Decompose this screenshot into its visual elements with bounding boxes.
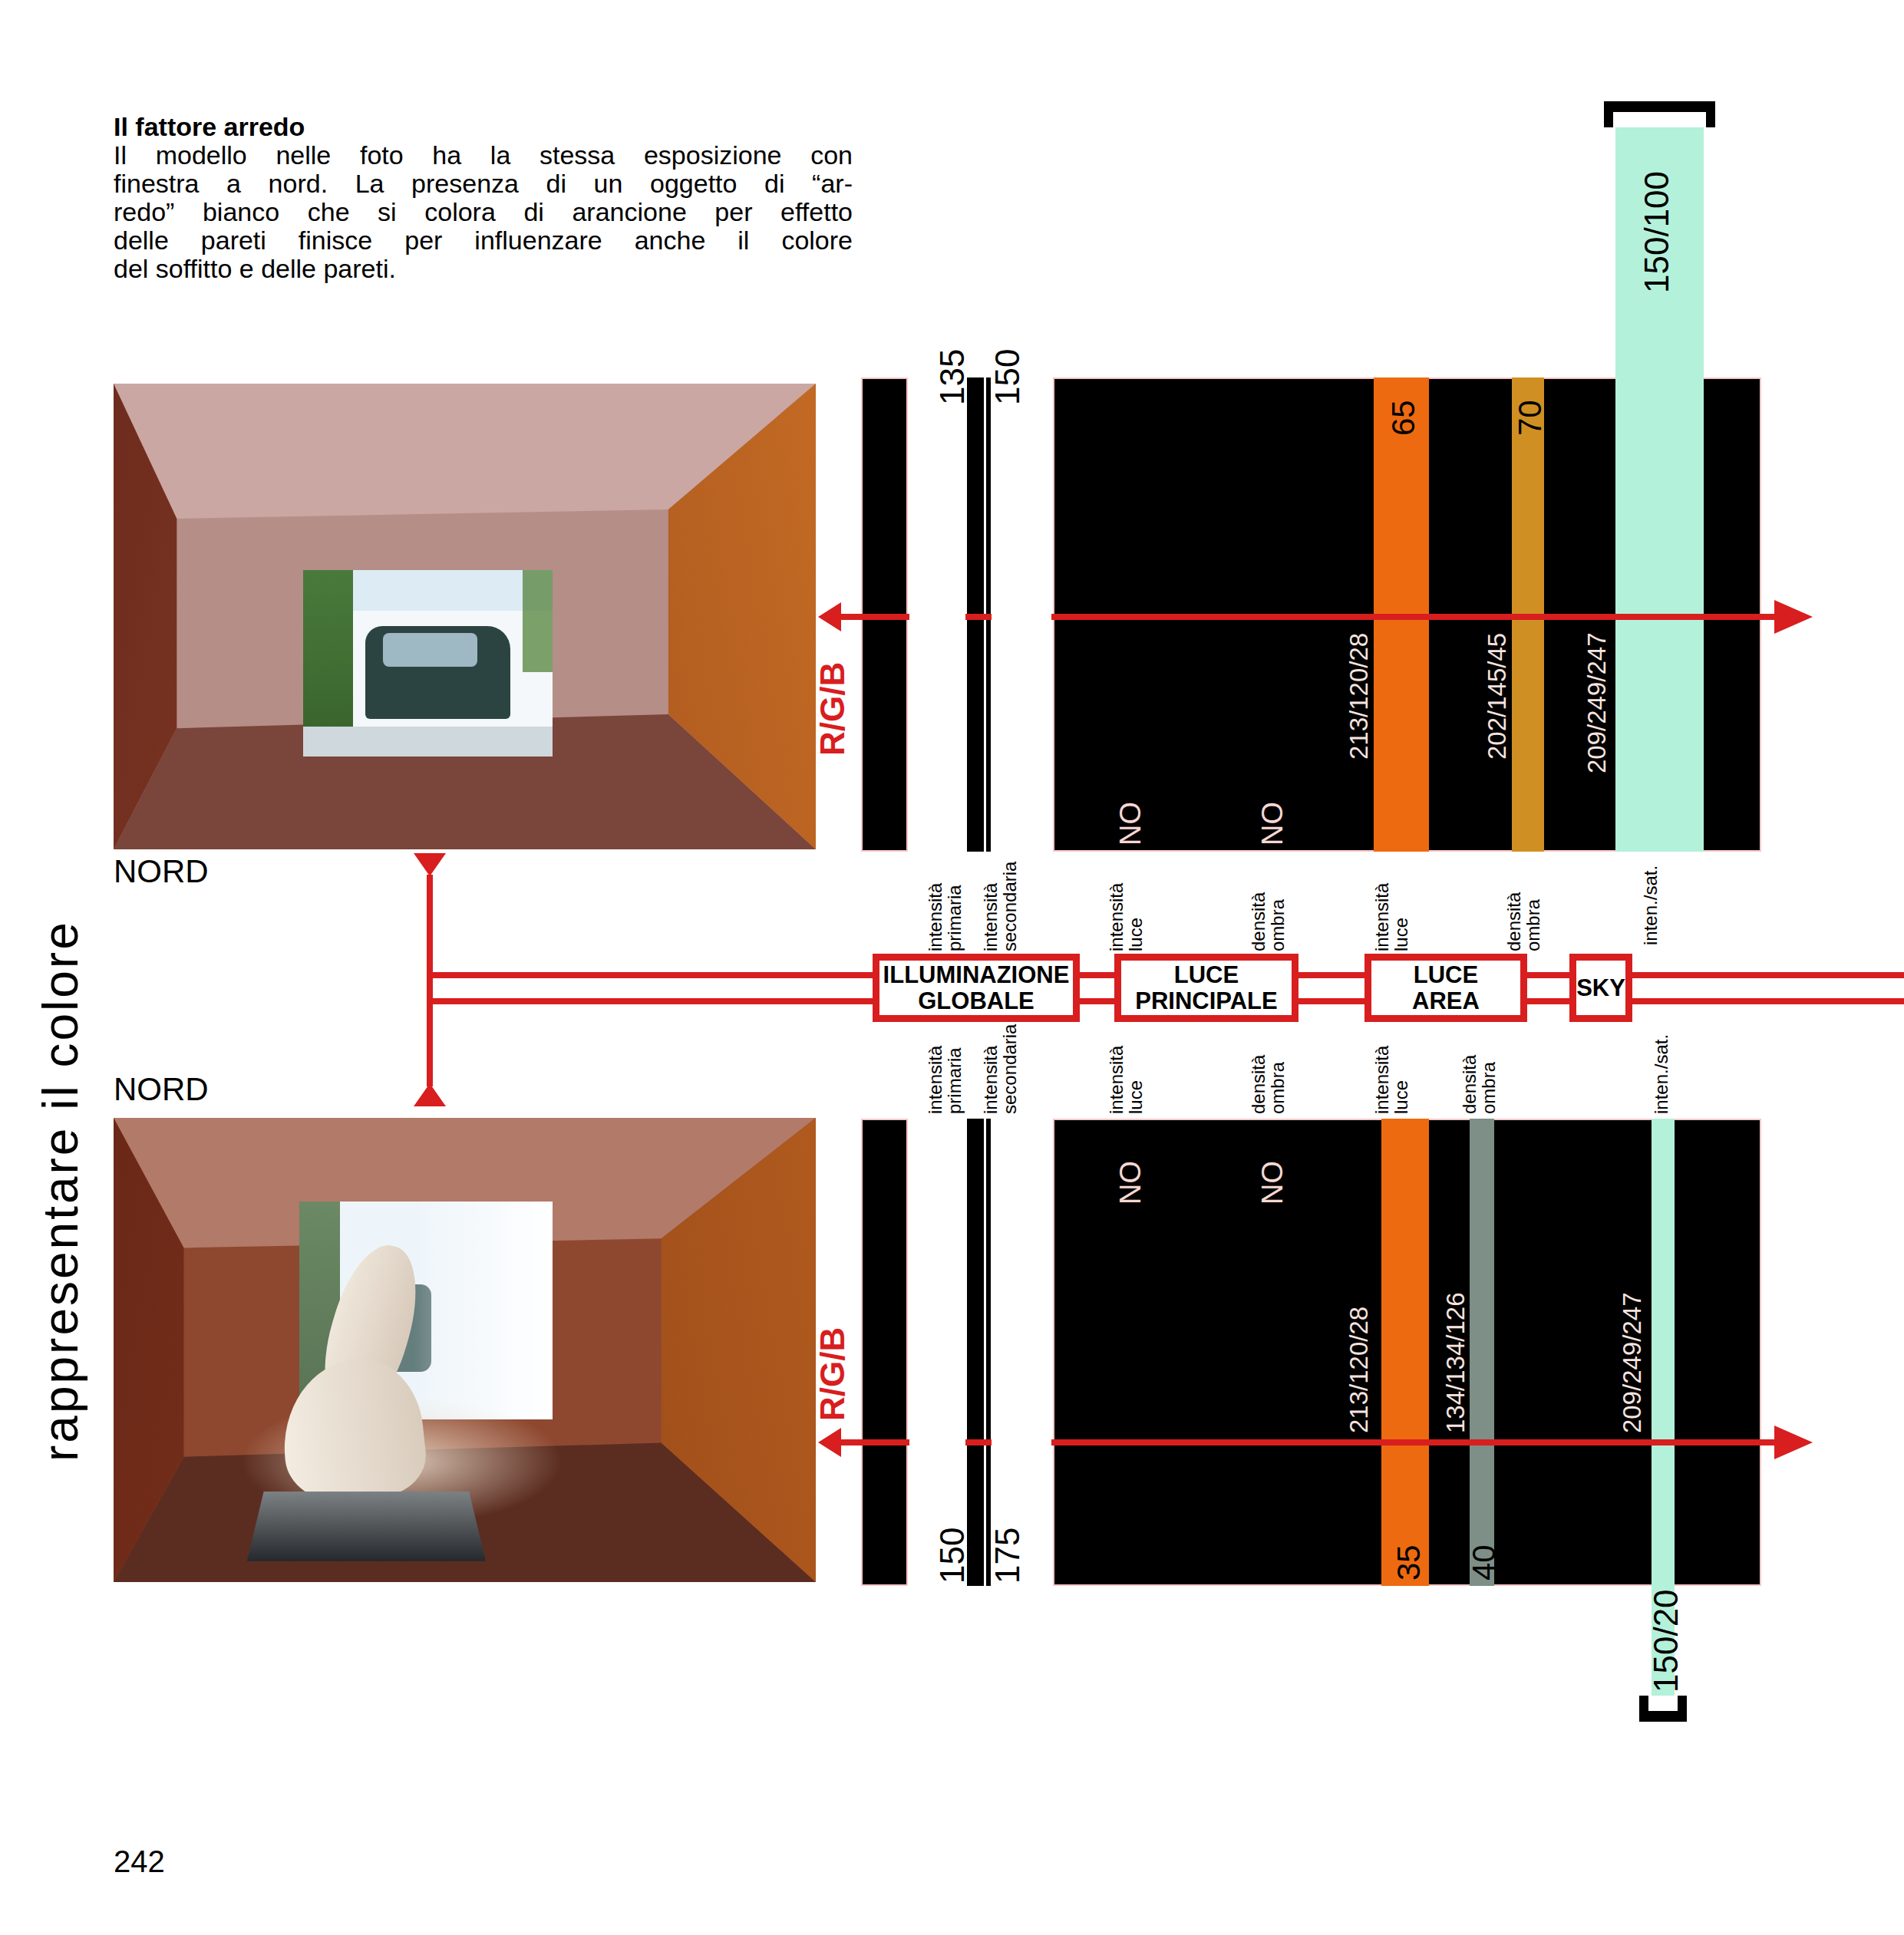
top-no-light-label: NO (1114, 802, 1147, 846)
axis-intensita-primaria: intensità primaria (926, 1046, 964, 1114)
top-rgb-marker: R/G/B (813, 662, 852, 756)
connector-triangle-up-icon (414, 1083, 446, 1106)
axis-line: ombra (1479, 1055, 1498, 1114)
bottom-shadow-value: 40 (1466, 1544, 1503, 1581)
photo-room-north-empty (114, 384, 816, 849)
top-photo-label: NORD (114, 853, 209, 890)
bottom-secondary-intensity-value: 175 (988, 1528, 1027, 1584)
axis-line: intensità (926, 883, 945, 951)
top-light-value: 65 (1385, 400, 1422, 436)
article-line: Il modello nelle foto ha la stessa espos… (114, 141, 853, 170)
axis-line: densità (1460, 1055, 1479, 1114)
axis-line: primaria (945, 1046, 964, 1114)
axis-line: luce (1126, 1046, 1145, 1114)
bottom-intensity-secondary-bar (986, 1119, 991, 1586)
flow-box-line: LUCE (1174, 962, 1239, 988)
top-shadow-rgb: 202/145/45 (1483, 633, 1512, 760)
bottom-shadow-rgb: 134/134/126 (1441, 1292, 1470, 1433)
axis-line: intensità (1372, 1046, 1391, 1114)
bottom-scanline-segment (965, 1439, 992, 1445)
axis-intensita-secondaria: intensità secondaria (981, 1024, 1019, 1114)
top-sky-rgb: 209/249/247 (1582, 632, 1612, 773)
axis-intensita-luce: intensità luce (1107, 1046, 1145, 1114)
axis-line: luce (1126, 883, 1145, 951)
bottom-light-value: 35 (1391, 1544, 1427, 1581)
axis-line: intensità (1107, 1046, 1126, 1114)
flow-box-line: AREA (1412, 988, 1480, 1014)
top-sky-bracket-icon (1604, 101, 1715, 127)
axis-line: secondaria (1000, 862, 1019, 951)
axis-line: luce (1391, 1046, 1411, 1114)
bottom-light-rgb: 213/120/28 (1345, 1307, 1374, 1433)
connector-triangle-down-icon (414, 853, 446, 876)
article-line: finestra a nord. La presenza di un ogget… (114, 170, 853, 198)
article-body: Il modello nelle foto ha la stessa espos… (114, 141, 853, 283)
top-sky-intensity-saturation: 150/100 (1638, 171, 1676, 293)
axis-intensita-luce: intensità luce (1372, 883, 1411, 951)
bottom-no-shadow-label: NO (1256, 1161, 1289, 1205)
axis-line: intensità (981, 862, 1000, 951)
window-foliage-right (523, 570, 553, 673)
axis-intensita-secondaria: intensità secondaria (981, 862, 1019, 951)
bottom-no-light-label: NO (1114, 1161, 1147, 1205)
axis-line: densità (1249, 1055, 1268, 1114)
flow-box-line: ILLUMINAZIONE (883, 962, 1070, 988)
article-line: redo” bianco che si colora di arancione … (114, 198, 853, 226)
bottom-light-bar-orange (1381, 1119, 1429, 1586)
flow-box-line: SKY (1576, 975, 1625, 1001)
axis-intensita-luce: intensità luce (1107, 883, 1145, 951)
bottom-sky-intensity-saturation: 150/20 (1647, 1589, 1685, 1693)
flow-box-line: LUCE (1414, 962, 1478, 988)
book-page: rappresentare il colore Il fattore arred… (0, 0, 1904, 1935)
sculpture-plinth (247, 1492, 486, 1561)
axis-line: ombra (1268, 1055, 1287, 1114)
bottom-scanline-arrow-right-icon (1774, 1426, 1813, 1459)
bottom-rgb-marker: R/G/B (813, 1327, 852, 1421)
article-line: del soffitto e delle pareti. (114, 255, 853, 283)
top-scanline-arrow-right-icon (1774, 600, 1813, 634)
photo-room-north-furnished (114, 1118, 816, 1582)
article-line: delle pareti finisce per influenzare anc… (114, 226, 853, 255)
axis-densita-ombra: densità ombra (1249, 1055, 1287, 1114)
flow-box-line: PRINCIPALE (1135, 988, 1277, 1014)
flow-box-luce-area: LUCE AREA (1364, 954, 1527, 1022)
sidebar-vertical-title: rappresentare il colore (32, 920, 89, 1462)
top-scanline-marker-left-icon (818, 602, 841, 631)
axis-densita-ombra: densità ombra (1460, 1055, 1498, 1114)
flow-box-sky: SKY (1569, 954, 1632, 1022)
top-scanline-segment (1051, 614, 1774, 620)
flow-box-line: GLOBALE (918, 988, 1034, 1014)
axis-line: densità (1249, 892, 1268, 951)
axis-line: primaria (945, 883, 964, 951)
top-scanline-segment (841, 614, 909, 620)
axis-densita-ombra: densità ombra (1504, 892, 1543, 951)
bottom-sky-bracket-icon (1639, 1696, 1687, 1722)
top-no-shadow-label: NO (1256, 802, 1289, 846)
window-car-glass (383, 633, 477, 667)
axis-line: secondaria (1000, 1024, 1019, 1114)
page-number: 242 (114, 1844, 165, 1879)
axis-line: intensità (1372, 883, 1391, 951)
window-glare (414, 1202, 553, 1419)
axis-intensita-luce: intensità luce (1372, 1046, 1411, 1114)
photo-window (303, 570, 553, 757)
bottom-scanline-marker-left-icon (818, 1428, 841, 1457)
bottom-sky-rgb: 209/249/247 (1618, 1292, 1647, 1433)
bottom-scanline-segment (1051, 1439, 1774, 1445)
axis-densita-ombra: densità ombra (1249, 892, 1287, 951)
bottom-intensity-primary-bar (967, 1119, 984, 1586)
axis-line: ombra (1523, 892, 1543, 951)
axis-line: intensità (926, 1046, 945, 1114)
bottom-primary-intensity-value: 150 (933, 1528, 972, 1584)
bottom-shadow-bar-gray (1470, 1119, 1494, 1586)
flow-box-illuminazione-globale: ILLUMINAZIONE GLOBALE (873, 954, 1080, 1022)
article-heading: Il fattore arredo (114, 112, 305, 142)
top-shadow-value: 70 (1512, 400, 1549, 436)
axis-inten-sat: inten./sat. (1641, 865, 1660, 945)
bottom-scanline-segment (841, 1439, 909, 1445)
axis-line: densità (1504, 892, 1523, 951)
window-ground (303, 727, 553, 757)
axis-intensita-primaria: intensità primaria (926, 883, 964, 951)
top-scanline-segment (965, 614, 992, 620)
bottom-primary-bar-panel (861, 1119, 908, 1586)
axis-line: intensità (981, 1024, 1000, 1114)
axis-line: intensità (1107, 883, 1126, 951)
top-light-rgb: 213/120/28 (1345, 633, 1374, 760)
axis-line: ombra (1268, 892, 1287, 951)
axis-line: luce (1391, 883, 1411, 951)
top-primary-intensity-value: 135 (933, 349, 972, 405)
flow-box-luce-principale: LUCE PRINCIPALE (1114, 954, 1298, 1022)
top-secondary-intensity-value: 150 (988, 349, 1027, 405)
bottom-photo-label: NORD (114, 1071, 209, 1108)
connector-vertical-line (427, 875, 433, 1086)
axis-inten-sat: inten./sat. (1652, 1034, 1671, 1114)
